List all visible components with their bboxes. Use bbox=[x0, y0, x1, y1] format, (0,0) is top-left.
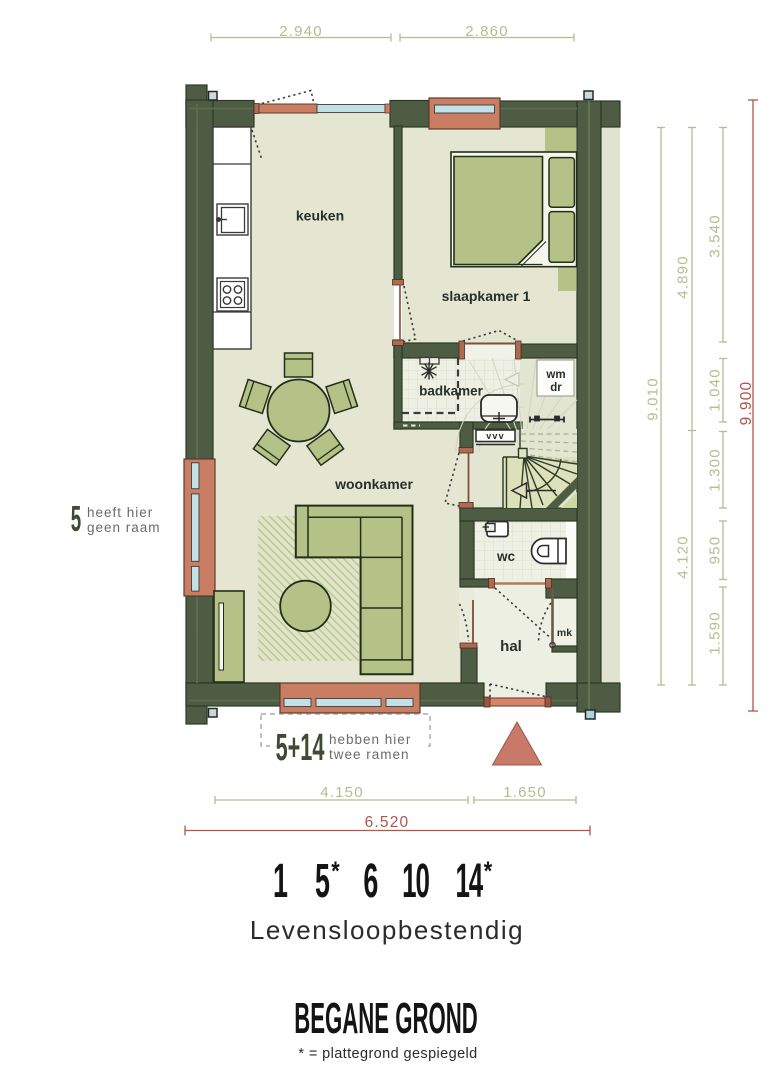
svg-text:vvv: vvv bbox=[486, 431, 505, 441]
svg-text:twee ramen: twee ramen bbox=[329, 747, 410, 762]
svg-text:Levensloopbestendig: Levensloopbestendig bbox=[250, 915, 524, 945]
svg-text:10: 10 bbox=[402, 855, 429, 909]
svg-text:1.590: 1.590 bbox=[707, 611, 724, 655]
svg-text:wm: wm bbox=[545, 369, 565, 381]
svg-text:*: * bbox=[484, 857, 493, 887]
svg-text:mk: mk bbox=[557, 627, 572, 639]
svg-text:3.540: 3.540 bbox=[707, 214, 724, 258]
svg-text:1.040: 1.040 bbox=[707, 368, 724, 412]
svg-text:6.520: 6.520 bbox=[365, 814, 410, 831]
svg-text:14: 14 bbox=[455, 855, 483, 909]
svg-text:5+14: 5+14 bbox=[276, 726, 325, 769]
svg-text:5: 5 bbox=[71, 500, 81, 540]
svg-text:BEGANE GROND: BEGANE GROND bbox=[294, 995, 478, 1043]
svg-text:4.120: 4.120 bbox=[675, 535, 692, 579]
svg-text:wc: wc bbox=[496, 549, 516, 564]
svg-text:slaapkamer 1: slaapkamer 1 bbox=[442, 288, 531, 304]
svg-text:hal: hal bbox=[500, 638, 522, 655]
svg-text:keuken: keuken bbox=[296, 208, 344, 224]
svg-text:2.860: 2.860 bbox=[465, 23, 509, 40]
svg-text:* = plattegrond gespiegeld: * = plattegrond gespiegeld bbox=[298, 1046, 477, 1062]
svg-text:geen raam: geen raam bbox=[87, 520, 161, 535]
svg-text:woonkamer: woonkamer bbox=[334, 476, 413, 492]
svg-text:1.650: 1.650 bbox=[503, 784, 547, 801]
svg-text:badkamer: badkamer bbox=[419, 384, 484, 399]
svg-text:6: 6 bbox=[363, 855, 378, 908]
svg-text:heeft hier: heeft hier bbox=[87, 505, 153, 520]
svg-text:4.890: 4.890 bbox=[675, 255, 692, 299]
svg-text:dr: dr bbox=[550, 382, 562, 394]
svg-text:4.150: 4.150 bbox=[320, 784, 364, 801]
svg-text:9.900: 9.900 bbox=[738, 381, 755, 426]
svg-text:*: * bbox=[331, 857, 340, 887]
svg-text:1.300: 1.300 bbox=[707, 448, 724, 492]
svg-text:2.940: 2.940 bbox=[279, 23, 323, 40]
svg-text:5: 5 bbox=[315, 855, 330, 908]
svg-text:hebben hier: hebben hier bbox=[329, 732, 411, 747]
svg-text:9.010: 9.010 bbox=[645, 377, 662, 421]
svg-text:950: 950 bbox=[707, 536, 724, 565]
svg-text:1: 1 bbox=[273, 855, 288, 908]
